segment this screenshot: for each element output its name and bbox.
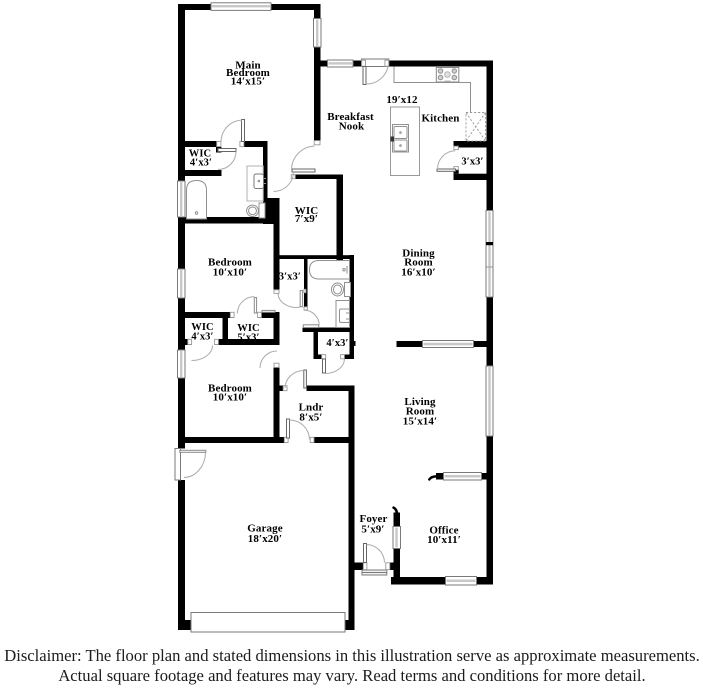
svg-text:5′x9′: 5′x9′ — [361, 524, 384, 536]
svg-text:8′x5′: 8′x5′ — [299, 412, 322, 424]
svg-text:Nook: Nook — [339, 121, 365, 133]
svg-text:14′x15′: 14′x15′ — [231, 76, 265, 88]
svg-text:4′x3′: 4′x3′ — [191, 332, 213, 343]
svg-text:10′x10′: 10′x10′ — [213, 267, 247, 279]
svg-text:7′x9′: 7′x9′ — [295, 213, 318, 225]
svg-text:4′x3′: 4′x3′ — [326, 338, 348, 349]
svg-text:10′x10′: 10′x10′ — [213, 392, 247, 404]
svg-text:Actual square footage and feat: Actual square footage and features may v… — [58, 666, 645, 685]
svg-text:3′x3′: 3′x3′ — [279, 272, 301, 283]
svg-text:3′x3′: 3′x3′ — [461, 157, 483, 168]
svg-text:Kitchen: Kitchen — [422, 113, 460, 125]
svg-text:19′x12: 19′x12 — [386, 94, 418, 106]
svg-text:15′x14′: 15′x14′ — [403, 416, 437, 428]
svg-text:10′x11′: 10′x11′ — [427, 534, 461, 546]
svg-text:5′x3′: 5′x3′ — [237, 333, 259, 344]
svg-text:4′x3′: 4′x3′ — [190, 158, 212, 169]
svg-text:18′x20′: 18′x20′ — [248, 533, 282, 545]
svg-text:Disclaimer: The floor plan and: Disclaimer: The floor plan and stated di… — [4, 646, 700, 665]
svg-text:16′x10′: 16′x10′ — [401, 267, 435, 279]
